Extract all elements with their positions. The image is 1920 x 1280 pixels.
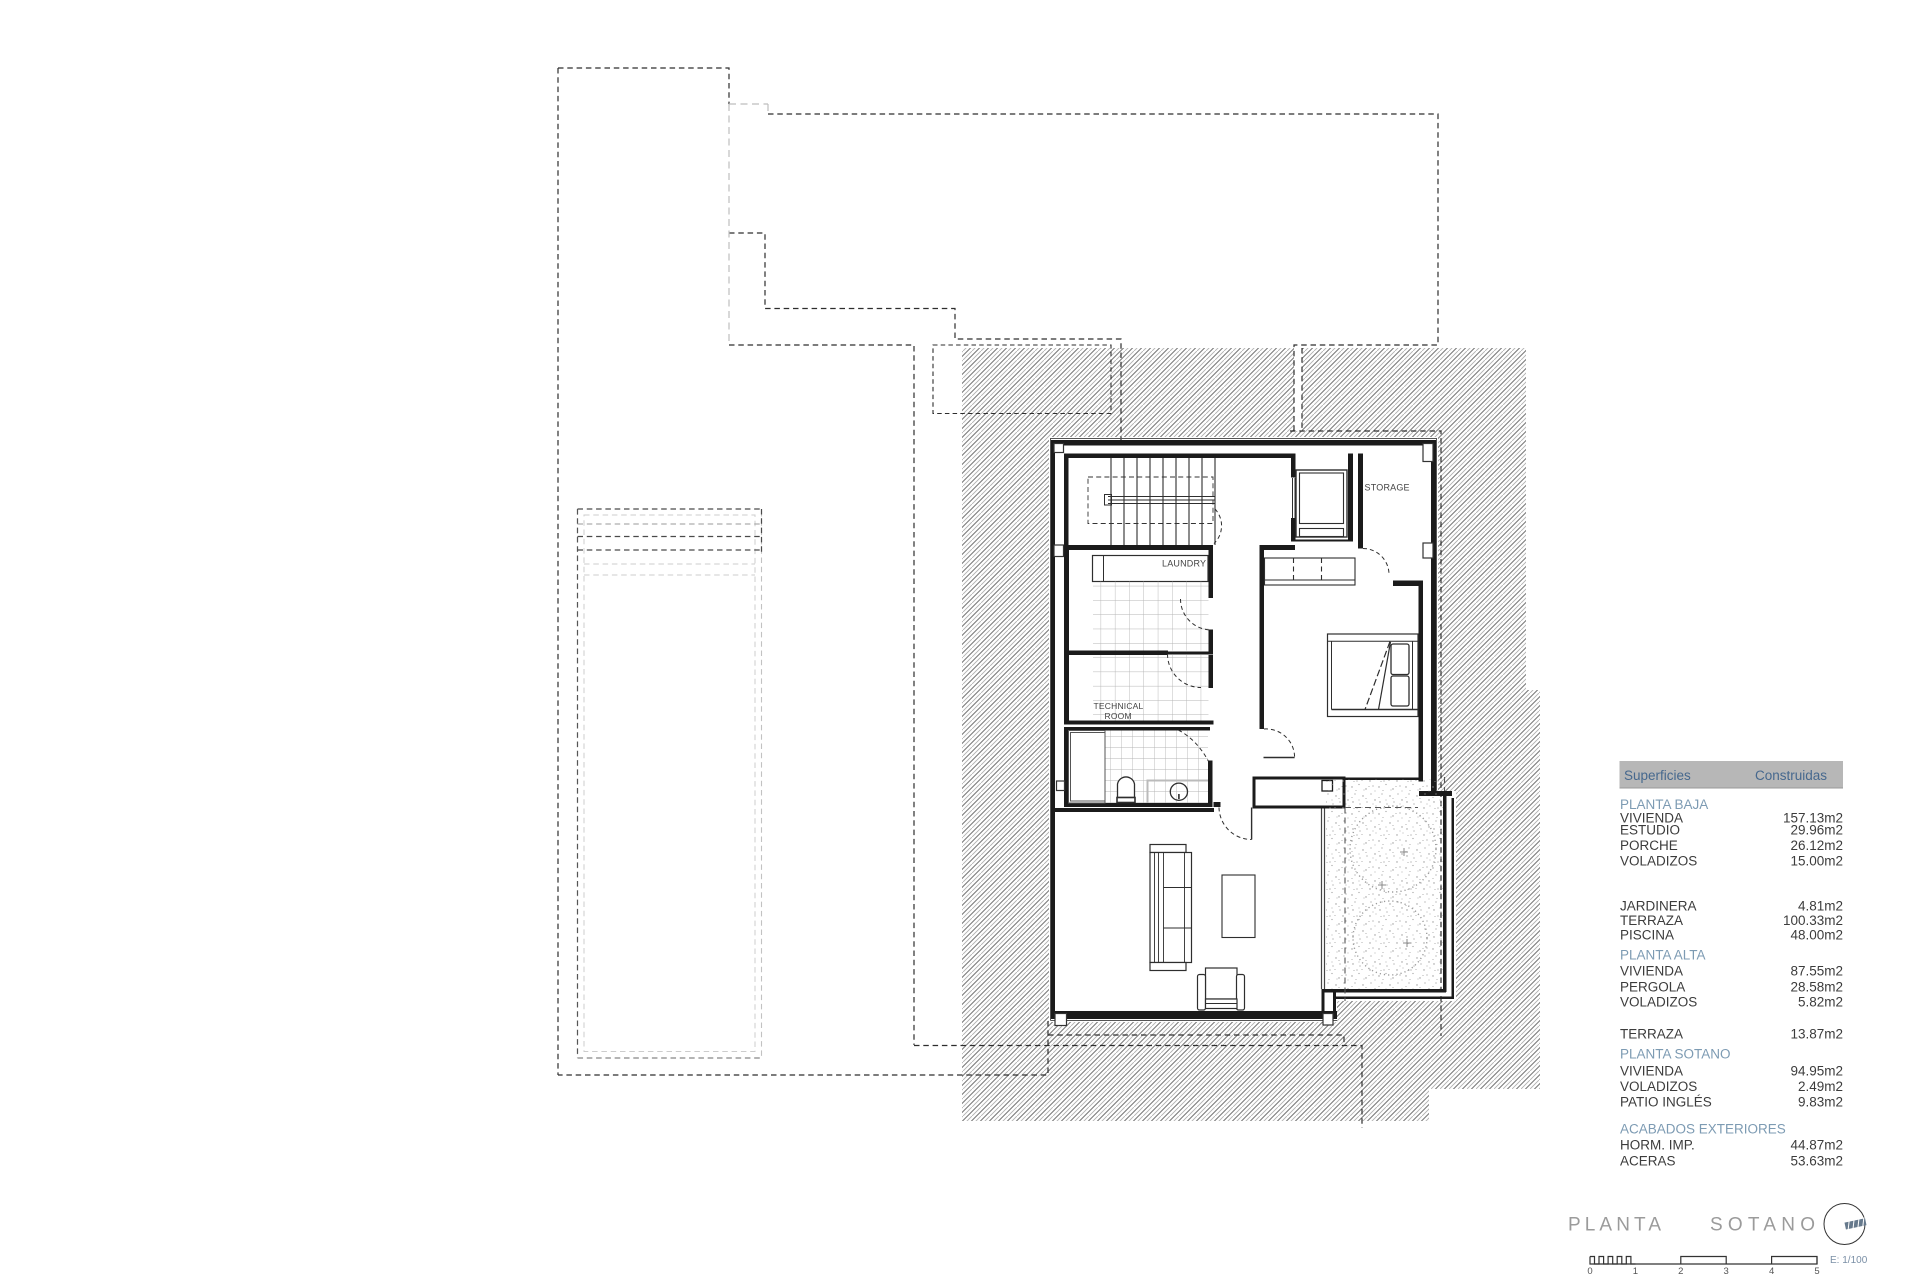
svg-text:PISCINA: PISCINA (1620, 928, 1674, 943)
svg-text:4: 4 (1769, 1266, 1774, 1277)
svg-text:HORM. IMP.: HORM. IMP. (1620, 1138, 1695, 1153)
svg-text:VIVIENDA: VIVIENDA (1620, 964, 1683, 979)
svg-text:TECHNICAL: TECHNICAL (1094, 701, 1144, 711)
svg-text:5: 5 (1814, 1266, 1819, 1277)
svg-text:44.87m2: 44.87m2 (1790, 1138, 1843, 1153)
svg-text:3: 3 (1724, 1266, 1729, 1277)
svg-text:E: 1/100: E: 1/100 (1830, 1255, 1868, 1266)
svg-text:4.81m2: 4.81m2 (1798, 899, 1843, 914)
svg-text:13.87m2: 13.87m2 (1790, 1027, 1843, 1042)
svg-text:PLANTA SOTANO: PLANTA SOTANO (1620, 1047, 1731, 1062)
svg-text:ACERAS: ACERAS (1620, 1154, 1676, 1169)
svg-text:9.83m2: 9.83m2 (1798, 1095, 1843, 1110)
svg-text:ACABADOS EXTERIORES: ACABADOS EXTERIORES (1620, 1122, 1786, 1137)
svg-text:5.82m2: 5.82m2 (1798, 995, 1843, 1010)
svg-text:0: 0 (1587, 1266, 1592, 1277)
svg-text:26.12m2: 26.12m2 (1790, 838, 1843, 853)
svg-text:2: 2 (1678, 1266, 1683, 1277)
svg-text:48.00m2: 48.00m2 (1790, 928, 1843, 943)
svg-text:94.95m2: 94.95m2 (1790, 1064, 1843, 1079)
svg-text:ROOM: ROOM (1105, 711, 1132, 721)
svg-text:PATIO INGLÉS: PATIO INGLÉS (1620, 1095, 1712, 1110)
svg-text:100.33m2: 100.33m2 (1783, 913, 1843, 928)
svg-text:VOLADIZOS: VOLADIZOS (1620, 995, 1697, 1010)
svg-text:15.00m2: 15.00m2 (1790, 854, 1843, 869)
svg-text:PORCHE: PORCHE (1620, 838, 1678, 853)
svg-text:Construidas: Construidas (1755, 768, 1827, 783)
svg-text:VIVIENDA: VIVIENDA (1620, 1064, 1683, 1079)
svg-text:Superficies: Superficies (1624, 768, 1691, 783)
svg-text:PLANTA ALTA: PLANTA ALTA (1620, 948, 1706, 963)
svg-text:2.49m2: 2.49m2 (1798, 1079, 1843, 1094)
svg-text:TERRAZA: TERRAZA (1620, 913, 1683, 928)
svg-text:87.55m2: 87.55m2 (1790, 964, 1843, 979)
svg-text:VOLADIZOS: VOLADIZOS (1620, 1079, 1697, 1094)
svg-text:PERGOLA: PERGOLA (1620, 980, 1685, 995)
svg-text:VOLADIZOS: VOLADIZOS (1620, 854, 1697, 869)
svg-text:ESTUDIO: ESTUDIO (1620, 823, 1680, 838)
svg-text:53.63m2: 53.63m2 (1790, 1154, 1843, 1169)
svg-text:29.96m2: 29.96m2 (1790, 823, 1843, 838)
svg-text:STORAGE: STORAGE (1365, 483, 1410, 493)
svg-text:TERRAZA: TERRAZA (1620, 1027, 1683, 1042)
svg-text:1: 1 (1633, 1266, 1638, 1277)
svg-text:LAUNDRY: LAUNDRY (1162, 559, 1206, 569)
svg-text:28.58m2: 28.58m2 (1790, 980, 1843, 995)
svg-text:JARDINERA: JARDINERA (1620, 899, 1697, 914)
